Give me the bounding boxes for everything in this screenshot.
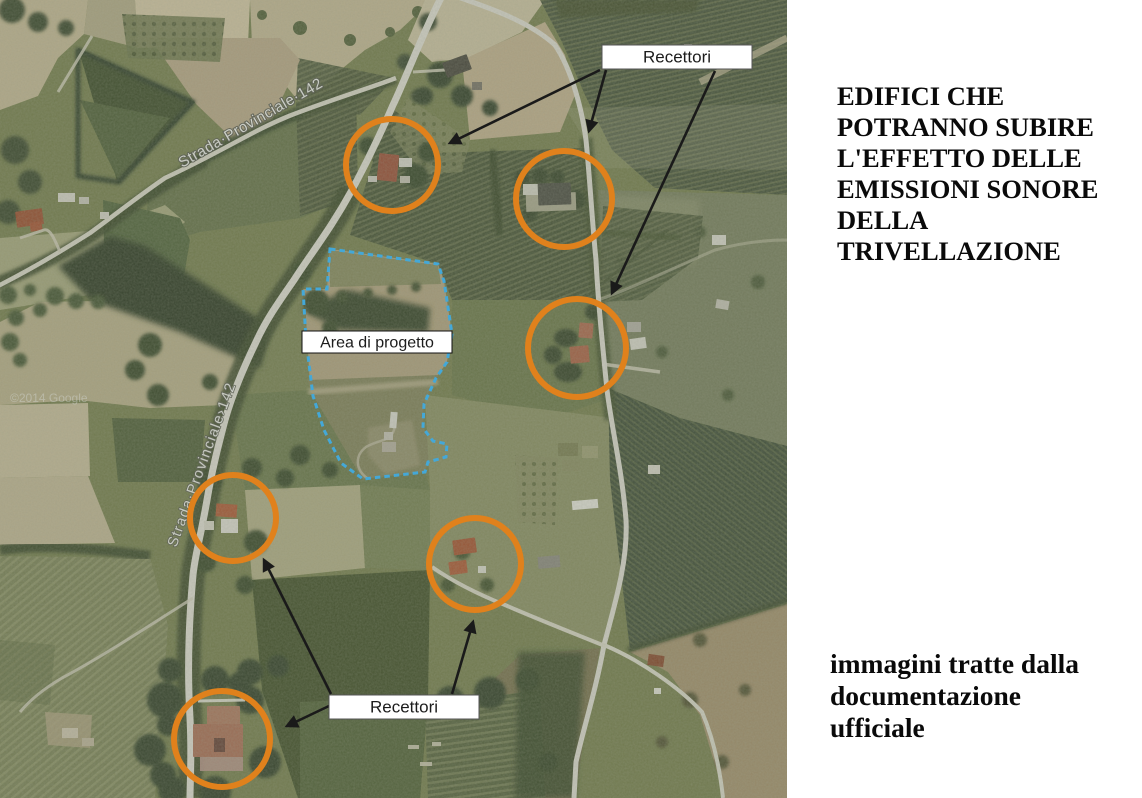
svg-text:Recettori: Recettori [643,48,711,67]
svg-text:Recettori: Recettori [370,698,438,717]
svg-text:Area di progetto: Area di progetto [320,335,434,352]
